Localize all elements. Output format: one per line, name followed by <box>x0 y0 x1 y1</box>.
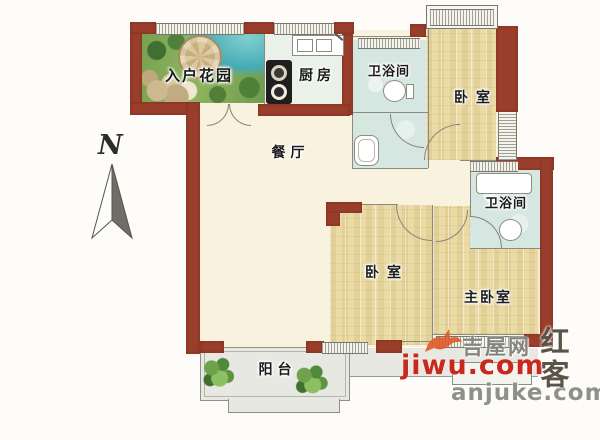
bathtub-inner <box>358 139 375 162</box>
wall-segment <box>376 340 402 353</box>
wall-segment <box>130 22 156 34</box>
window <box>358 38 420 49</box>
wall-segment <box>410 24 426 37</box>
label-bath-top: 卫浴间 <box>368 61 410 80</box>
partition <box>352 115 353 168</box>
label-balcony: 阳台 <box>254 359 297 379</box>
partition <box>353 112 428 113</box>
burner-icon <box>271 84 287 100</box>
wall-segment <box>326 202 362 213</box>
wall-segment <box>130 102 188 115</box>
toilet-icon <box>383 80 406 102</box>
window <box>322 342 368 354</box>
toilet-tank <box>406 84 414 99</box>
window <box>430 9 494 26</box>
wall-segment <box>540 157 553 347</box>
sink-icon <box>297 39 313 52</box>
watermark-stamp: 红客 <box>532 326 574 392</box>
north-letter: N <box>98 130 123 161</box>
sink-icon <box>316 39 332 52</box>
partition <box>264 33 265 104</box>
plant-icon <box>294 364 328 396</box>
wall-segment <box>244 22 274 34</box>
label-master-bedroom: 主卧室 <box>464 287 512 307</box>
bay-window <box>426 5 498 29</box>
burner-icon <box>271 65 287 81</box>
washbasin-icon <box>499 219 522 241</box>
label-kitchen: 厨房 <box>299 65 335 85</box>
wall-segment <box>186 102 200 354</box>
label-entry-garden: 入户花园 <box>165 65 233 86</box>
partition <box>352 168 428 169</box>
window <box>470 161 518 172</box>
bathtub-icon <box>354 135 379 166</box>
watermark-jiwu-domain: jiwu.com <box>401 350 545 381</box>
label-bedroom-top: 卧室 <box>446 87 498 107</box>
bath-counter <box>476 173 532 194</box>
wall-segment <box>200 341 224 353</box>
wall-segment <box>130 22 142 114</box>
wall-segment <box>334 22 354 34</box>
wall-segment <box>496 26 518 112</box>
label-dining: 餐厅 <box>267 142 310 162</box>
floor-plan: 入户花园 厨房 卫浴间 卧室 餐厅 卫浴间 卧室 主卧室 阳台 N 吉屋网 ji… <box>0 0 600 440</box>
partition <box>432 205 433 345</box>
stove-icon <box>266 60 292 104</box>
watermark-anjuke-domain: anjuke.com <box>451 380 600 406</box>
window <box>274 23 334 35</box>
label-bath-mid: 卫浴间 <box>485 193 527 212</box>
partition <box>470 168 471 216</box>
partition <box>470 248 540 249</box>
north-arrow-icon: N <box>84 132 140 252</box>
balcony-step <box>228 399 340 413</box>
plant-icon <box>202 356 234 390</box>
wall-segment <box>258 104 350 116</box>
window <box>156 23 244 35</box>
label-bedroom-mid: 卧室 <box>357 262 409 282</box>
window <box>498 112 517 160</box>
